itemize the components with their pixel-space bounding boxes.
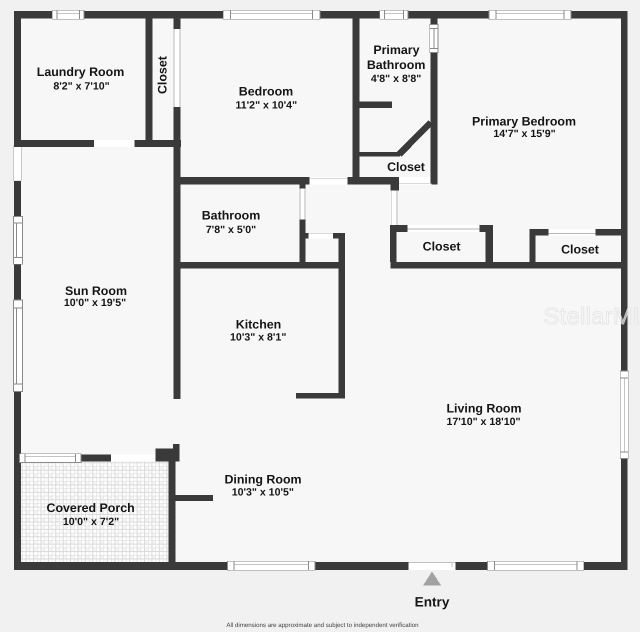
svg-text:StellarMLS: StellarMLS [544, 303, 640, 329]
svg-text:Bathroom: Bathroom [202, 209, 261, 223]
svg-text:4'8" x 8'8": 4'8" x 8'8" [371, 73, 421, 85]
svg-text:Closet: Closet [156, 56, 170, 94]
svg-text:All dimensions are approximate: All dimensions are approximate and subje… [226, 622, 419, 629]
svg-text:7'8" x 5'0": 7'8" x 5'0" [206, 224, 256, 236]
svg-text:Primary: Primary [373, 43, 419, 57]
svg-text:10'3" x 10'5": 10'3" x 10'5" [232, 487, 294, 499]
svg-text:Primary Bedroom: Primary Bedroom [472, 114, 576, 128]
svg-text:Laundry Room: Laundry Room [37, 65, 124, 79]
svg-text:14'7" x 15'9": 14'7" x 15'9" [493, 128, 555, 140]
svg-text:10'3" x 8'1": 10'3" x 8'1" [230, 332, 286, 344]
svg-text:Closet: Closet [387, 160, 425, 174]
svg-text:Covered Porch: Covered Porch [47, 501, 135, 515]
svg-text:Closet: Closet [561, 243, 599, 257]
svg-text:Sun Room: Sun Room [65, 284, 127, 298]
svg-text:Living Room: Living Room [446, 401, 521, 415]
svg-text:Closet: Closet [423, 239, 461, 253]
svg-text:Dining Room: Dining Room [224, 473, 301, 487]
svg-text:Bathroom: Bathroom [367, 58, 426, 72]
svg-text:17'10" x 18'10": 17'10" x 18'10" [447, 416, 521, 428]
svg-text:8'2" x 7'10": 8'2" x 7'10" [53, 80, 109, 92]
svg-text:11'2" x 10'4": 11'2" x 10'4" [235, 100, 297, 112]
svg-text:Entry: Entry [415, 594, 450, 609]
svg-text:10'0" x 19'5": 10'0" x 19'5" [64, 297, 126, 309]
svg-text:Bedroom: Bedroom [239, 85, 293, 99]
svg-text:Kitchen: Kitchen [236, 318, 281, 332]
svg-text:10'0" x 7'2": 10'0" x 7'2" [63, 516, 119, 528]
